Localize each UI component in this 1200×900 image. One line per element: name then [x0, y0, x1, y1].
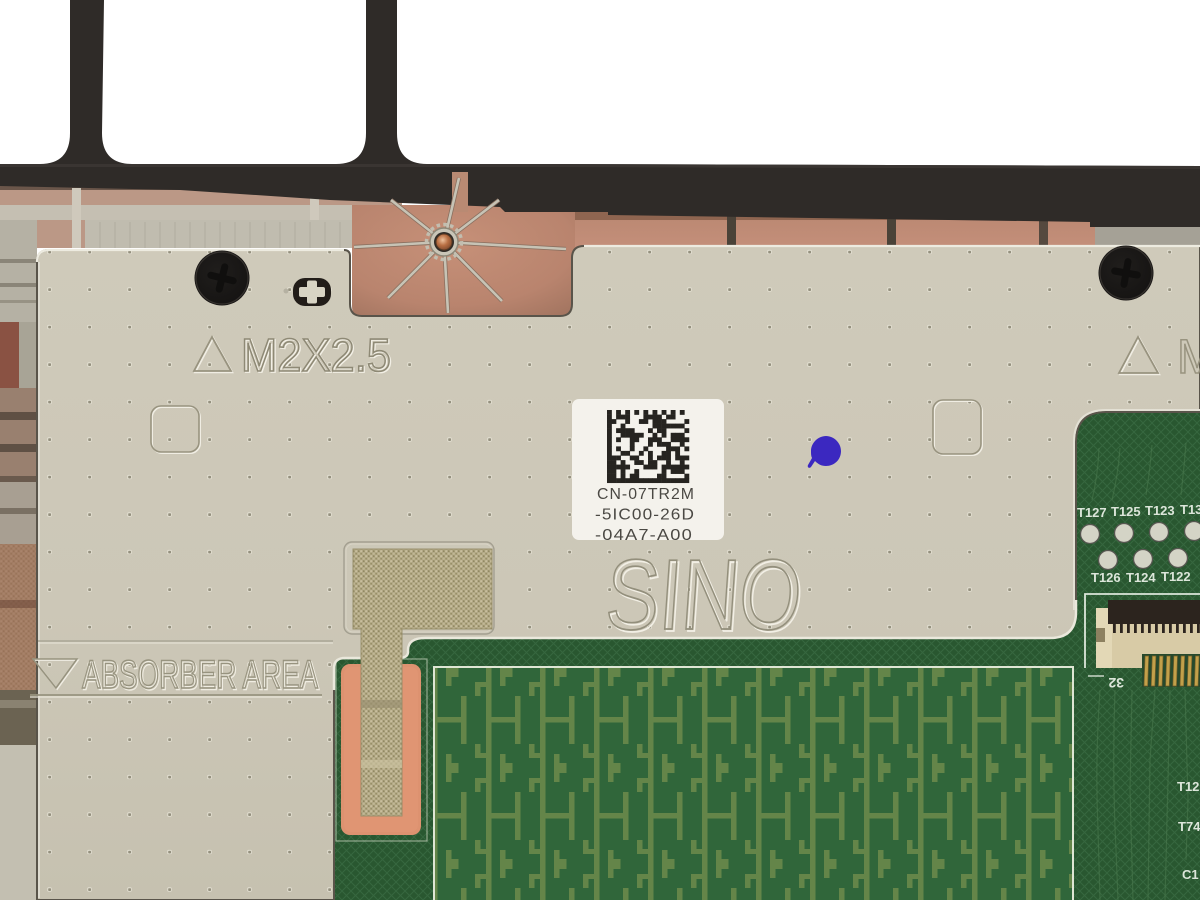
svg-text:M2X2.5: M2X2.5	[241, 329, 391, 381]
svg-text:T74: T74	[1178, 819, 1200, 834]
svg-text:-04A7-A00: -04A7-A00	[595, 527, 693, 544]
svg-text:T127: T127	[1077, 505, 1107, 520]
svg-text:ABSORBER AREA: ABSORBER AREA	[82, 653, 318, 697]
svg-text:T122: T122	[1161, 569, 1191, 584]
svg-text:M2: M2	[1177, 331, 1200, 384]
svg-text:T125: T125	[1111, 504, 1141, 519]
svg-text:C1: C1	[1182, 867, 1199, 882]
svg-text:T12: T12	[1177, 779, 1199, 794]
svg-text:-5IC00-26D: -5IC00-26D	[595, 507, 695, 524]
svg-text:T124: T124	[1126, 570, 1156, 585]
svg-text:T123: T123	[1145, 503, 1175, 518]
svg-text:CN-07TR2M: CN-07TR2M	[597, 486, 695, 503]
svg-text:T126: T126	[1091, 570, 1121, 585]
svg-text:SINO: SINO	[602, 539, 805, 651]
svg-text:T13: T13	[1180, 502, 1200, 517]
svg-text:32: 32	[1108, 675, 1124, 691]
